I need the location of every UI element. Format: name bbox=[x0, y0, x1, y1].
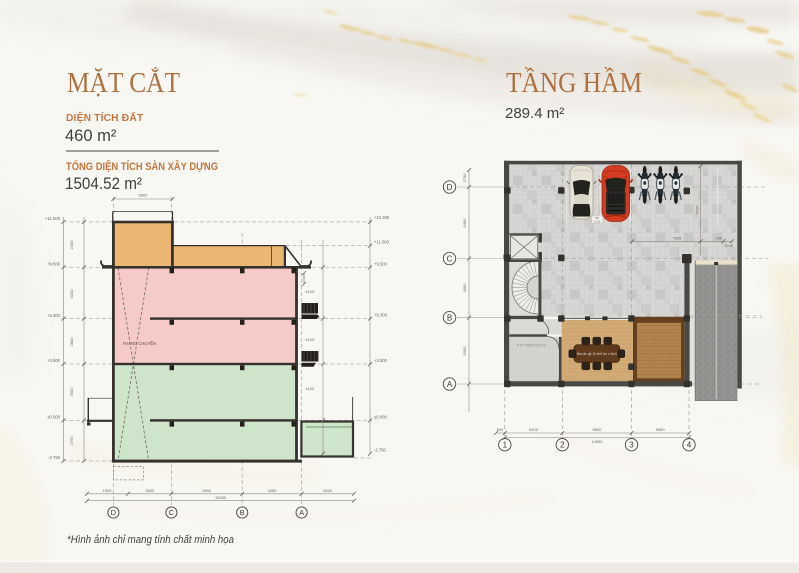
svg-text:1433: 1433 bbox=[305, 337, 315, 342]
svg-text:5400: 5400 bbox=[529, 427, 539, 432]
svg-text:1504.52 m²: 1504.52 m² bbox=[65, 175, 142, 193]
svg-text:460 m²: 460 m² bbox=[65, 127, 117, 145]
svg-text:-2.750: -2.750 bbox=[374, 448, 387, 453]
svg-text:+11.800: +11.800 bbox=[45, 216, 61, 221]
svg-text:3500: 3500 bbox=[69, 387, 74, 397]
svg-text:+9.500: +9.500 bbox=[47, 262, 61, 267]
svg-text:4350: 4350 bbox=[267, 488, 277, 493]
svg-text:+6.300: +6.300 bbox=[47, 313, 61, 318]
svg-text:2700: 2700 bbox=[462, 173, 467, 183]
svg-text:8000: 8000 bbox=[323, 488, 333, 493]
svg-text:DIỆN TÍCH ĐẤT: DIỆN TÍCH ĐẤT bbox=[66, 111, 144, 124]
svg-text:Bàn ăn gỗ 10 chỗ 1m x 2m4: Bàn ăn gỗ 10 chỗ 1m x 2m4 bbox=[577, 351, 617, 356]
svg-text:15350: 15350 bbox=[215, 495, 227, 500]
svg-text:A: A bbox=[299, 508, 304, 517]
svg-text:14550: 14550 bbox=[591, 439, 603, 444]
svg-text:±0.000: ±0.000 bbox=[374, 414, 387, 419]
svg-text:5900: 5900 bbox=[138, 193, 148, 198]
svg-text:2800: 2800 bbox=[69, 337, 74, 347]
svg-text:5400: 5400 bbox=[462, 218, 467, 228]
svg-text:4500: 4500 bbox=[462, 283, 467, 293]
svg-text:289.4 m²: 289.4 m² bbox=[505, 105, 564, 122]
svg-text:+12.300: +12.300 bbox=[374, 215, 390, 220]
svg-text:1: 1 bbox=[503, 441, 508, 450]
svg-text:*Hình ảnh chỉ mang tính chất m: *Hình ảnh chỉ mang tính chất minh họa bbox=[67, 534, 234, 546]
svg-text:2: 2 bbox=[560, 441, 565, 450]
svg-text:3650: 3650 bbox=[145, 488, 155, 493]
svg-text:5000: 5000 bbox=[462, 346, 467, 356]
svg-text:1500: 1500 bbox=[103, 488, 113, 493]
svg-text:D: D bbox=[111, 508, 116, 517]
svg-text:7935: 7935 bbox=[673, 236, 681, 240]
svg-text:+3.500: +3.500 bbox=[374, 358, 388, 363]
svg-text:TẦNG HẦM: TẦNG HẦM bbox=[506, 67, 642, 99]
svg-text:MẶT CẮT: MẶT CẮT bbox=[67, 67, 180, 99]
svg-text:500: 500 bbox=[497, 427, 504, 432]
svg-text:5.750: 5.750 bbox=[594, 220, 601, 223]
svg-text:THANG CHUYỂN: THANG CHUYỂN bbox=[123, 341, 157, 346]
svg-text:TỔNG DIỆN TÍCH SÀN XÂY DỰNG: TỔNG DIỆN TÍCH SÀN XÂY DỰNG bbox=[66, 160, 218, 173]
svg-text:2149: 2149 bbox=[725, 244, 733, 248]
svg-text:+11.000: +11.000 bbox=[374, 240, 390, 245]
svg-text:P.KT ĐIỆN NƯỚC: P.KT ĐIỆN NƯỚC bbox=[517, 343, 547, 348]
svg-text:2300: 2300 bbox=[69, 240, 74, 250]
svg-text:3: 3 bbox=[629, 441, 634, 450]
svg-text:±0.000: ±0.000 bbox=[47, 415, 60, 420]
svg-text:B: B bbox=[240, 508, 245, 517]
svg-text:5550: 5550 bbox=[656, 427, 666, 432]
svg-text:3200: 3200 bbox=[69, 289, 74, 299]
svg-text:D: D bbox=[447, 183, 453, 192]
svg-text:+3.500: +3.500 bbox=[47, 358, 61, 363]
svg-text:+9.500: +9.500 bbox=[374, 261, 388, 266]
svg-text:A: A bbox=[447, 380, 453, 389]
svg-text:C: C bbox=[447, 254, 453, 263]
svg-text:5425: 5425 bbox=[696, 206, 700, 214]
svg-text:200: 200 bbox=[716, 236, 722, 240]
svg-text:-2.750: -2.750 bbox=[48, 455, 61, 460]
svg-text:5800: 5800 bbox=[592, 427, 602, 432]
svg-text:4: 4 bbox=[687, 441, 692, 450]
svg-text:5500: 5500 bbox=[202, 488, 212, 493]
svg-text:+6.300: +6.300 bbox=[374, 313, 388, 318]
svg-text:C: C bbox=[169, 508, 174, 517]
svg-text:1433: 1433 bbox=[305, 386, 315, 391]
svg-text:2750: 2750 bbox=[69, 436, 74, 446]
svg-text:B: B bbox=[447, 314, 452, 323]
svg-text:1433: 1433 bbox=[305, 289, 315, 294]
